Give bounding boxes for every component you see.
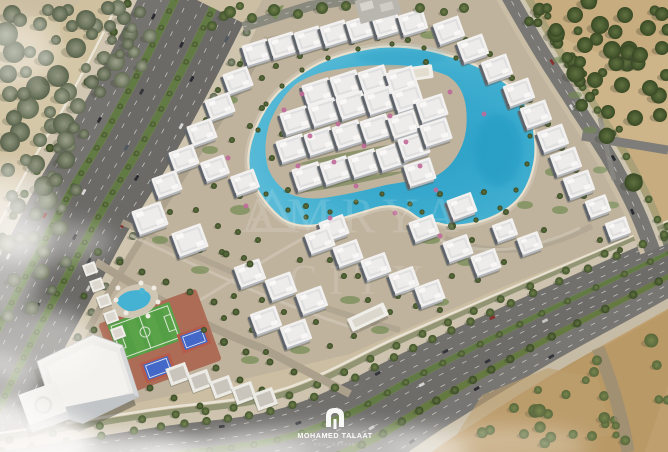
svg-text:MOHAMED TALAAT: MOHAMED TALAAT	[297, 431, 372, 440]
svg-text:CITY: CITY	[289, 258, 435, 304]
svg-text:REAL ESTATE: REAL ESTATE	[314, 442, 357, 447]
